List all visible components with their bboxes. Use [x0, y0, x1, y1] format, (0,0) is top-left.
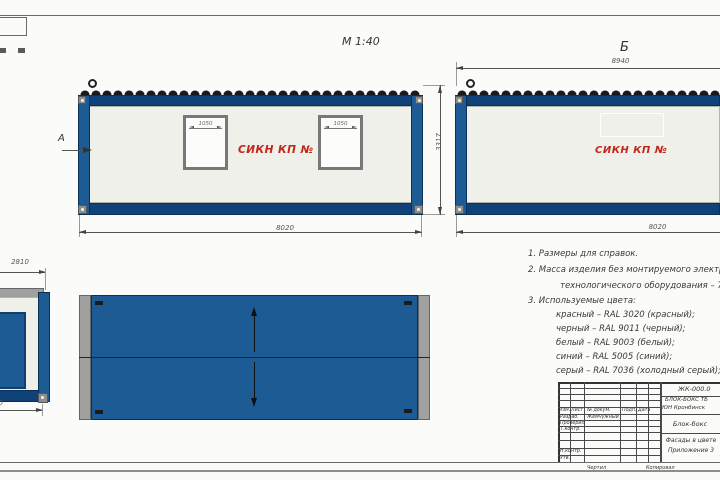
lug-mark: [95, 301, 103, 305]
bottom-rail: [89, 203, 412, 215]
stamp-col-podpis: Подп.: [622, 408, 637, 413]
sheet-title-line1: Фасады в цвете: [660, 437, 720, 444]
item-name: Блок-бокс: [660, 420, 720, 428]
grid-line: [558, 432, 660, 433]
window: 1050: [318, 115, 363, 170]
stamp-col-docnum: № докум.: [587, 408, 611, 413]
arrowhead-icon: [456, 230, 463, 234]
note-line: серый – RAL 7036 (холодный серый);: [556, 366, 720, 376]
stamp-row-tkontr: Т.контр.: [560, 427, 581, 432]
arrowhead-icon: [456, 66, 463, 70]
lifting-ring-icon: [88, 79, 97, 88]
corner-fitting: [455, 205, 464, 214]
footer-left-label: Чертил: [587, 465, 606, 471]
top-rail: [466, 95, 720, 106]
extension-line: [45, 268, 46, 290]
note-line: черный – RAL 9011 (черный);: [556, 324, 686, 334]
window: 1050: [183, 115, 228, 170]
corner-fitting: [455, 96, 463, 104]
scale-label: М 1:40: [342, 35, 380, 48]
stamp-col-data: Дата: [638, 408, 650, 413]
slope-arrow-down-icon: [251, 398, 257, 407]
grid-line: [660, 433, 720, 434]
note-line: синий – RAL 5005 (синий);: [556, 352, 672, 362]
corner-fitting: [415, 96, 423, 104]
roof-corrugation: [80, 86, 421, 95]
frame-bottom-outer-line: [0, 470, 720, 472]
dimension-value: 3317: [435, 124, 443, 160]
developer-name: Жемчужный: [587, 415, 619, 420]
corner-fitting: [414, 205, 423, 214]
sign-plate-outline: [600, 113, 664, 137]
corner-post-left: [78, 95, 90, 215]
container-sign: СИКН КП №: [595, 145, 665, 156]
dimension-line: [456, 68, 720, 69]
lug-mark: [95, 410, 103, 414]
stamp-row-proveril: Проверил: [560, 421, 585, 426]
slope-arrow-line: [254, 362, 255, 399]
side-wall: [466, 106, 720, 203]
extension-line: [42, 404, 43, 416]
cut-off-mark: [0, 48, 6, 53]
object-name-line2: ЮН Кронбинск: [662, 405, 705, 411]
dimension-value: 8020: [255, 224, 315, 232]
section-a-arrow-icon: [83, 147, 92, 153]
window-dimension: 1050: [324, 121, 357, 129]
lug-mark: [404, 301, 412, 305]
corner-fitting: [38, 393, 48, 403]
grid-line: [558, 394, 660, 395]
dimension-value: 8020: [635, 223, 680, 231]
dimension-value: 8940: [598, 57, 643, 65]
corner-post-left: [455, 95, 467, 215]
top-rail: [89, 95, 412, 106]
section-a-label: А: [58, 133, 65, 144]
corner-fitting: [78, 96, 86, 104]
lifting-ring-icon: [466, 79, 475, 88]
stamp-row-nkontr: Н.контр.: [560, 449, 581, 454]
grid-line: [558, 388, 660, 389]
grid-line: [558, 400, 660, 401]
stamp-col-izm: Изм.: [559, 408, 570, 413]
dimension-value: 2810: [0, 258, 40, 266]
stamp-col-list: Лист: [571, 408, 583, 413]
footer-right-label: Копировал: [646, 465, 675, 471]
arrowhead-icon: [438, 85, 442, 93]
dimension-line: [456, 232, 720, 233]
note-line: 3. Используемые цвета:: [528, 296, 636, 306]
bottom-rail: [466, 203, 720, 215]
lug-mark: [404, 409, 412, 413]
note-line: 2. Масса изделия без монтируемого электр…: [528, 265, 720, 275]
roof-corrugation: [457, 86, 720, 95]
view-b-label: Б: [620, 40, 629, 55]
cut-off-mark: [18, 48, 25, 53]
object-name-line1: БЛОК-БОКС ТБ: [665, 397, 708, 403]
note-line: технологического оборудования – 7300 кг.: [560, 281, 720, 291]
arrowhead-icon: [415, 230, 422, 234]
dimension-line: [79, 232, 422, 233]
corner-post-right: [411, 95, 423, 215]
doc-number: ЖК-000.0: [678, 385, 711, 393]
dimension-value-partial: 50: [0, 399, 10, 407]
corner-fitting: [78, 205, 87, 214]
slope-arrow-up-icon: [251, 307, 257, 316]
note-line: красный – RAL 3020 (красный);: [556, 310, 695, 320]
window-dimension: 1050: [189, 121, 222, 129]
grid-line: [558, 455, 660, 456]
stamp-row-razrab: Разраб.: [560, 415, 579, 420]
arrowhead-icon: [79, 230, 86, 234]
corner-post-right: [38, 292, 50, 402]
frame-corner-box: [0, 17, 27, 36]
roof-ridge-line: [79, 357, 430, 358]
frame-top-line: [0, 15, 720, 16]
slope-arrow-line: [254, 315, 255, 352]
frame-bottom-inner-line: [0, 462, 720, 463]
stamp-row-utv: Утв.: [560, 456, 570, 461]
arrowhead-icon: [438, 207, 442, 215]
grid-line: [660, 414, 720, 415]
note-line: белый – RAL 9003 (белый);: [556, 338, 675, 348]
sheet-title-line2: Приложение 3: [660, 447, 720, 454]
door: [0, 312, 26, 389]
note-line: 1. Размеры для справок.: [528, 249, 638, 259]
grid-line: [558, 440, 660, 441]
drawing-sheet: М 1:40 1050 1050 СИКН КП № А: [0, 0, 720, 480]
container-sign: СИКН КП №: [238, 144, 304, 156]
